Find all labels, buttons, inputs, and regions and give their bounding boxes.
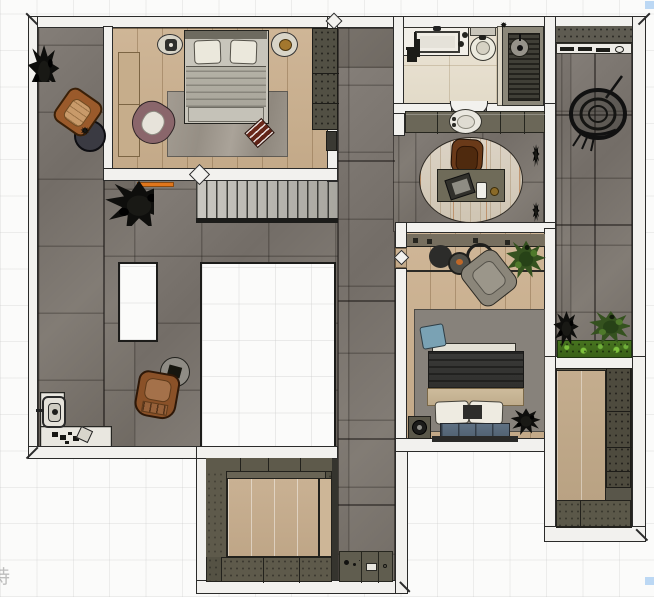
bed1-headboard	[185, 31, 267, 39]
nightstand-right	[271, 32, 298, 57]
staircase	[196, 180, 338, 223]
closet1-floor-plank-right	[319, 478, 332, 557]
terrace-center-plant	[94, 176, 154, 226]
wall-terrace-bottom	[28, 446, 206, 459]
shower-plant-icon	[500, 21, 517, 40]
terrace-decor-scatter	[52, 432, 58, 437]
closet2-wardrobe-column	[606, 368, 631, 488]
bedroom1-wardrobe	[312, 28, 338, 130]
desk-plant	[490, 187, 499, 196]
bed2-center-cushion	[463, 405, 482, 419]
closet1-wardrobe-left	[206, 471, 227, 557]
terrace-table-plant	[80, 126, 100, 146]
wall-closet2-east	[632, 356, 646, 542]
bed1-foot-fold	[188, 107, 264, 122]
hallway-console-cabinet	[339, 551, 393, 582]
terrace-corner-plant	[26, 12, 64, 82]
balcony-green-plant	[582, 308, 630, 348]
bedroom2-blue-pillow	[419, 323, 447, 350]
floor-plan-canvas: { "meta": { "type": "floor-plan", "view"…	[0, 0, 654, 597]
watermark-text: 持	[0, 562, 11, 589]
hallway-tile-joint	[338, 160, 395, 162]
hallway-tile-joint	[338, 300, 395, 302]
bed2-duvet	[428, 351, 524, 390]
study-wall-plant-bottom	[532, 176, 550, 230]
nightstand-left	[157, 34, 183, 55]
study-wall-plant-top	[532, 108, 550, 170]
wall-bedroom1-west	[103, 26, 113, 172]
wall-hallway-right-lower	[395, 438, 408, 594]
closet1-floor-platform	[227, 478, 319, 557]
hallway-tile-joint	[338, 438, 395, 440]
bedroom2-floor-plant	[508, 406, 546, 442]
study-desk	[437, 169, 505, 202]
balcony-bar-shelf	[556, 43, 632, 54]
closet1-wardrobe-bottom	[221, 557, 332, 582]
balcony-ledge	[556, 26, 632, 43]
balcony-dark-plant	[552, 296, 586, 348]
skylight-large	[200, 262, 336, 452]
phone	[476, 182, 487, 199]
closet1-east-dark-wall	[331, 452, 338, 582]
corner-marker-top-right	[645, 1, 654, 9]
vessel-basin	[449, 109, 482, 134]
laptop	[444, 172, 475, 200]
hallway-console-card	[366, 563, 377, 571]
corner-marker-bottom-right	[645, 577, 654, 585]
wall-bathroom-east	[544, 16, 556, 116]
wall-closet2-west	[544, 356, 556, 542]
wall-balcony-east	[632, 16, 646, 368]
bed2-headboard	[432, 436, 518, 442]
hanging-egg-chair	[560, 74, 640, 152]
bathroom-basin	[415, 31, 460, 53]
bed1-duvet	[186, 66, 266, 107]
outdoor-faucet	[42, 396, 66, 428]
hallway-floor	[338, 28, 395, 582]
wall-left-outer	[28, 16, 38, 458]
hallway-tile-joint	[338, 504, 395, 506]
bedroom2-nightstand	[408, 416, 431, 439]
skylight-small	[118, 262, 158, 342]
bedroom2-potted-plant	[504, 236, 546, 280]
wall-closet2-south	[544, 526, 646, 542]
shower-head	[510, 38, 529, 57]
bed1-pillow-left	[194, 40, 222, 65]
bathroom-vanity	[403, 27, 469, 56]
faucet	[433, 26, 441, 31]
bed1-pillow-right	[230, 40, 258, 65]
wall-bottom-center	[196, 580, 408, 594]
bedroom1-wardrobe-side-block	[326, 131, 337, 151]
closet1-wardrobe-top	[206, 458, 332, 472]
wall-bedroom2-west-upper	[395, 222, 407, 248]
closet2-storage-cabinets	[556, 500, 631, 527]
bedroom1-bench-divider	[118, 104, 140, 105]
closet2-wood-floor	[556, 370, 606, 502]
toilet	[470, 27, 496, 61]
wall-bedroom2-west-lower	[395, 268, 407, 452]
bed1	[184, 30, 269, 124]
